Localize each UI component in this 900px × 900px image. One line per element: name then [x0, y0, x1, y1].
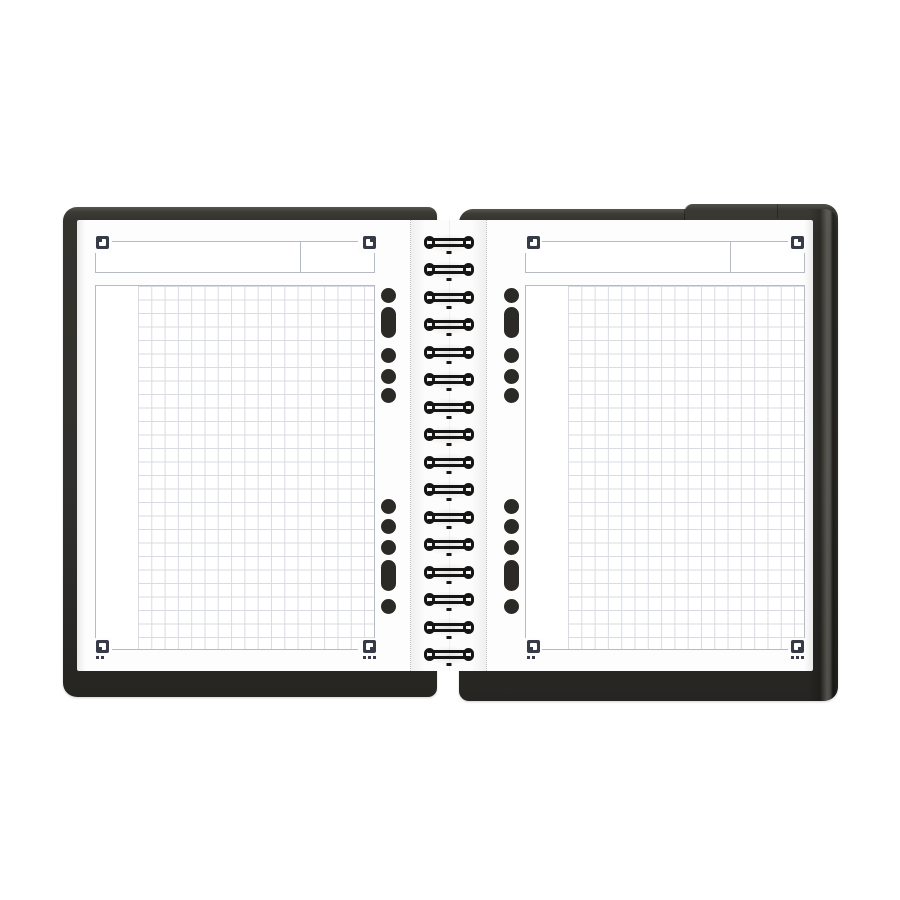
- punch-hole-circle: [504, 540, 519, 555]
- punch-hole-circle: [381, 369, 396, 384]
- spiral-ring: [425, 511, 473, 525]
- spiral-ring: [425, 456, 473, 470]
- punch-hole-circle: [381, 599, 396, 614]
- spiral-ring: [425, 621, 473, 635]
- grid-area-right: [525, 285, 805, 650]
- notebook-product-photo: [0, 0, 900, 900]
- corner-mark-bottom-left: [96, 640, 109, 653]
- spiral-ring: [425, 483, 473, 497]
- spiral-ring: [425, 346, 473, 360]
- grid-squares: [138, 286, 374, 649]
- spiral-ring: [425, 566, 473, 580]
- corner-mark-bottom-right: [363, 640, 376, 653]
- spiral-ring: [425, 236, 473, 250]
- punch-hole-circle: [504, 499, 519, 514]
- corner-mark-bottom-left: [527, 640, 540, 653]
- punch-hole-circle: [381, 348, 396, 363]
- punch-hole-circle: [381, 388, 396, 403]
- punch-hole-circle: [504, 519, 519, 534]
- page-left: [77, 220, 410, 671]
- header-box-left: [95, 241, 375, 273]
- punch-hole-circle: [504, 369, 519, 384]
- spiral-ring: [425, 593, 473, 607]
- header-divider: [730, 242, 731, 272]
- header-divider: [300, 242, 301, 272]
- grid-squares: [568, 286, 804, 649]
- corner-mark-top-right: [791, 236, 804, 249]
- punch-hole-circle: [381, 499, 396, 514]
- spiral-ring: [425, 318, 473, 332]
- punch-hole-capsule: [381, 307, 396, 338]
- punch-hole-circle: [504, 288, 519, 303]
- corner-mark-bottom-right: [791, 640, 804, 653]
- punch-hole-capsule: [504, 307, 519, 338]
- punch-hole-circle: [381, 288, 396, 303]
- punch-hole-circle: [504, 599, 519, 614]
- cover-flap-seam: [777, 204, 778, 218]
- corner-mark-dots: [791, 656, 804, 659]
- corner-mark-dots: [527, 656, 535, 659]
- spiral-ring: [425, 538, 473, 552]
- corner-mark-dots: [96, 656, 104, 659]
- punch-hole-capsule: [381, 560, 396, 591]
- punch-hole-capsule: [504, 560, 519, 591]
- spiral-ring: [425, 263, 473, 277]
- spiral-ring: [425, 373, 473, 387]
- spine-strip: [410, 220, 487, 671]
- spiral-ring: [425, 428, 473, 442]
- spiral-ring: [425, 401, 473, 415]
- header-box-right: [525, 241, 805, 273]
- corner-mark-top-right: [363, 236, 376, 249]
- corner-mark-top-left: [96, 236, 109, 249]
- punch-hole-circle: [504, 388, 519, 403]
- punch-hole-circle: [381, 540, 396, 555]
- corner-mark-dots: [363, 656, 376, 659]
- punch-hole-circle: [504, 348, 519, 363]
- page-right: [487, 220, 813, 671]
- spiral-ring: [425, 648, 473, 662]
- grid-area-left: [95, 285, 375, 650]
- punch-hole-circle: [381, 519, 396, 534]
- corner-mark-top-left: [527, 236, 540, 249]
- spiral-ring: [425, 291, 473, 305]
